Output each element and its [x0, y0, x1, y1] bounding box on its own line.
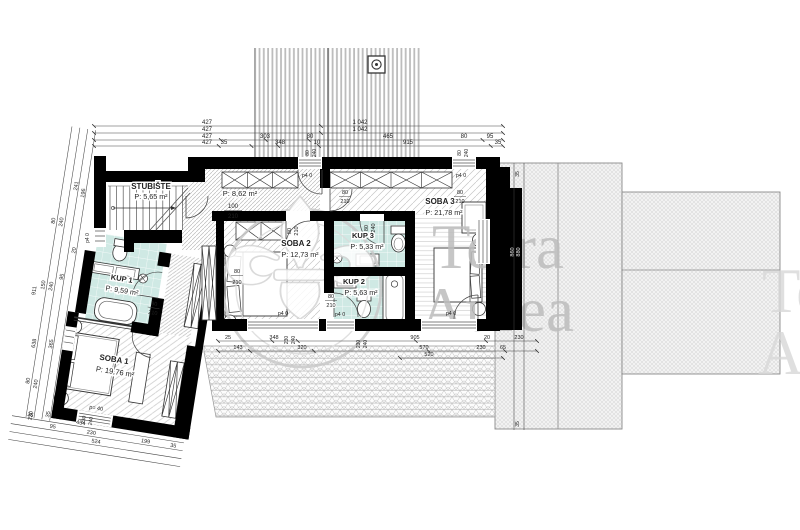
svg-text:427: 427	[202, 140, 213, 146]
svg-text:320: 320	[297, 345, 306, 351]
svg-text:65: 65	[500, 345, 506, 351]
svg-text:80: 80	[342, 190, 348, 196]
svg-text:210: 210	[326, 303, 335, 309]
svg-text:10: 10	[314, 140, 321, 146]
svg-text:240: 240	[291, 336, 297, 345]
svg-text:P: 5,65 m²: P: 5,65 m²	[134, 192, 168, 201]
svg-text:80: 80	[328, 294, 334, 300]
svg-text:348: 348	[275, 140, 286, 146]
svg-text:p4 0: p4 0	[278, 311, 288, 317]
svg-text:35: 35	[221, 140, 228, 146]
svg-text:80: 80	[287, 228, 293, 234]
svg-text:p4 0: p4 0	[302, 173, 312, 179]
svg-text:25: 25	[225, 335, 231, 341]
svg-text:80: 80	[25, 377, 32, 384]
svg-text:240: 240	[371, 223, 377, 232]
svg-text:348: 348	[269, 335, 278, 341]
svg-text:95: 95	[487, 134, 494, 140]
svg-text:210: 210	[232, 280, 241, 286]
svg-text:80: 80	[234, 269, 240, 275]
svg-text:Te: Te	[762, 256, 800, 326]
svg-text:P: 21,78 m²: P: 21,78 m²	[425, 208, 463, 217]
svg-text:230: 230	[356, 340, 362, 349]
svg-text:210: 210	[228, 214, 239, 220]
svg-text:35: 35	[45, 411, 52, 418]
svg-text:520: 520	[424, 352, 433, 358]
svg-text:Au: Au	[758, 318, 800, 388]
svg-text:35: 35	[27, 412, 34, 419]
svg-text:P: 12,73 m²: P: 12,73 m²	[281, 250, 319, 259]
svg-text:P: 5,63 m²: P: 5,63 m²	[344, 288, 378, 297]
svg-text:230: 230	[284, 336, 290, 345]
svg-text:80: 80	[457, 190, 463, 196]
svg-text:P: 5,33 m²: P: 5,33 m²	[350, 242, 384, 251]
svg-text:80: 80	[51, 217, 58, 224]
svg-text:p4 0: p4 0	[456, 173, 466, 179]
svg-text:240: 240	[312, 149, 318, 158]
svg-text:210: 210	[455, 199, 464, 205]
svg-text:1 042: 1 042	[352, 120, 368, 126]
svg-text:80: 80	[364, 225, 370, 231]
svg-text:p4 0: p4 0	[446, 311, 456, 317]
svg-text:143: 143	[233, 345, 242, 351]
svg-text:303: 303	[260, 134, 271, 140]
svg-text:465: 465	[383, 134, 394, 140]
svg-text:p4 0: p4 0	[85, 233, 91, 243]
svg-text:SOBA 2: SOBA 2	[281, 239, 311, 248]
svg-text:95: 95	[49, 424, 56, 431]
svg-text:p4 0: p4 0	[335, 312, 345, 318]
svg-text:35: 35	[170, 443, 177, 450]
svg-text:80: 80	[305, 150, 311, 156]
svg-text:20: 20	[484, 335, 490, 341]
svg-text:230: 230	[476, 345, 485, 351]
svg-text:240: 240	[363, 340, 369, 349]
svg-text:230: 230	[514, 335, 523, 341]
svg-text:KUP 2: KUP 2	[343, 277, 365, 286]
svg-text:P: 8,62 m²: P: 8,62 m²	[223, 189, 258, 198]
svg-text:427: 427	[202, 127, 213, 133]
svg-text:1 042: 1 042	[352, 127, 368, 133]
svg-text:570: 570	[419, 345, 428, 351]
svg-text:20: 20	[71, 247, 78, 254]
svg-text:SOBA 3: SOBA 3	[425, 197, 455, 206]
svg-text:210: 210	[294, 226, 300, 235]
svg-text:905: 905	[410, 335, 419, 341]
svg-text:427: 427	[202, 120, 213, 126]
svg-text:35: 35	[515, 171, 521, 177]
svg-text:100: 100	[228, 204, 239, 210]
svg-text:35: 35	[495, 140, 502, 146]
svg-text:880: 880	[516, 247, 522, 256]
svg-text:STUBIŠTE: STUBIŠTE	[131, 182, 171, 191]
svg-text:80: 80	[457, 150, 463, 156]
svg-text:240: 240	[464, 149, 470, 158]
svg-text:210: 210	[340, 199, 349, 205]
svg-text:35: 35	[515, 421, 521, 427]
svg-text:80: 80	[151, 301, 158, 308]
svg-text:95: 95	[59, 273, 66, 280]
svg-text:80: 80	[461, 134, 468, 140]
svg-text:915: 915	[403, 140, 414, 146]
